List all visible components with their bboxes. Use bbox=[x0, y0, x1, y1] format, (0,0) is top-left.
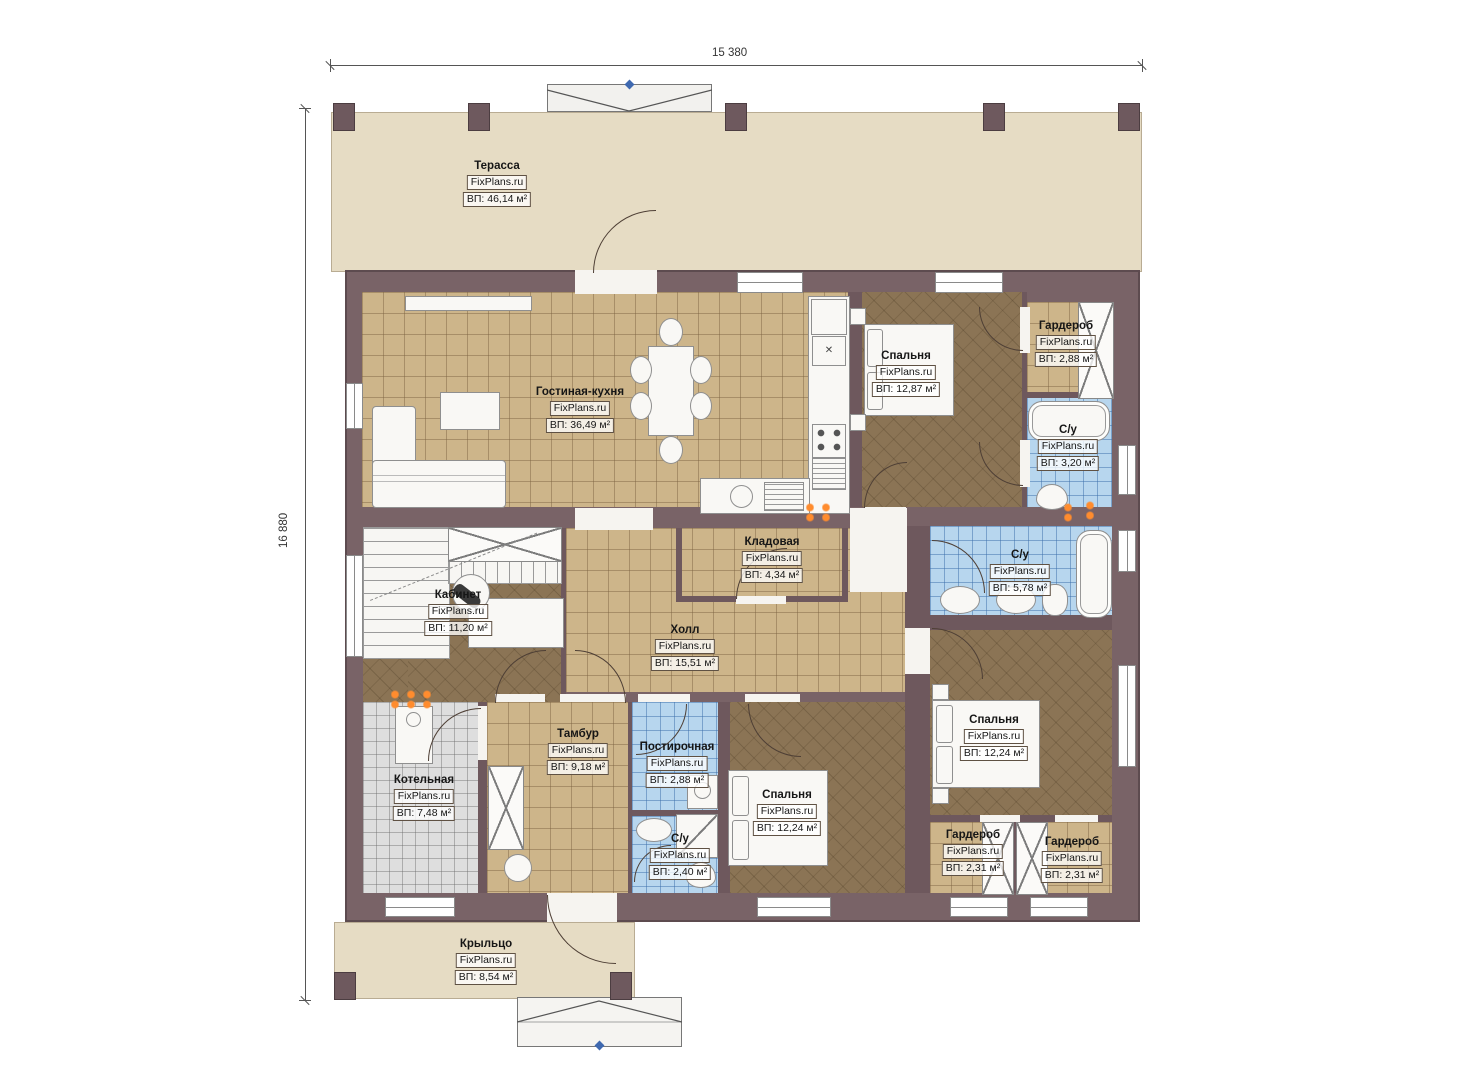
room-label-bathroom-bottom: С/у FixPlans.ru ВП: 2,40 м² bbox=[649, 833, 711, 880]
chair bbox=[690, 392, 712, 420]
room-label-wardrobe-top: Гардероб FixPlans.ru ВП: 2,88 м² bbox=[1035, 320, 1097, 367]
room-label-office: Кабинет FixPlans.ru ВП: 11,20 м² bbox=[424, 589, 492, 636]
nightstand bbox=[850, 414, 866, 431]
room-area: ВП: 36,49 м² bbox=[546, 418, 614, 433]
boiler-hatch bbox=[406, 712, 421, 727]
window bbox=[1118, 530, 1136, 572]
chair bbox=[630, 356, 652, 384]
outlet-icon bbox=[407, 690, 415, 709]
watermark: FixPlans.ru bbox=[655, 639, 716, 654]
chair bbox=[630, 392, 652, 420]
watermark: FixPlans.ru bbox=[757, 804, 818, 819]
watermark: FixPlans.ru bbox=[456, 953, 517, 968]
outlet-icon bbox=[1086, 501, 1094, 520]
watermark: FixPlans.ru bbox=[943, 844, 1004, 859]
room-area: ВП: 8,54 м² bbox=[455, 970, 517, 985]
door-opening bbox=[980, 815, 1020, 822]
chair bbox=[690, 356, 712, 384]
nightstand bbox=[932, 788, 949, 804]
room-area: ВП: 2,40 м² bbox=[649, 865, 711, 880]
outlet-icon bbox=[391, 690, 399, 709]
room-label-boiler-room: Котельная FixPlans.ru ВП: 7,48 м² bbox=[393, 774, 455, 821]
room-name: Кабинет bbox=[424, 589, 492, 602]
window bbox=[346, 555, 363, 657]
dishwasher bbox=[812, 458, 846, 490]
room-label-porch: Крыльцо FixPlans.ru ВП: 8,54 м² bbox=[455, 938, 517, 985]
chair bbox=[659, 436, 683, 464]
floor-plan-canvas: 15 380 16 880 bbox=[0, 0, 1474, 1080]
room-label-bathroom-mid: С/у FixPlans.ru ВП: 5,78 м² bbox=[989, 549, 1051, 596]
room-area: ВП: 5,78 м² bbox=[989, 581, 1051, 596]
wall bbox=[676, 528, 682, 602]
dimension-tick bbox=[299, 1000, 311, 1001]
room-area: ВП: 7,48 м² bbox=[393, 806, 455, 821]
room-area: ВП: 11,20 м² bbox=[424, 621, 492, 636]
door-opening bbox=[745, 694, 800, 702]
dimension-height-label: 16 880 bbox=[278, 513, 290, 548]
outlet-icon bbox=[806, 503, 814, 522]
room-area: ВП: 15,51 м² bbox=[651, 656, 719, 671]
outlet-icon bbox=[822, 503, 830, 522]
dimension-tick bbox=[1142, 59, 1143, 72]
door-opening bbox=[1055, 815, 1098, 822]
room-area: ВП: 9,18 м² bbox=[547, 760, 609, 775]
watermark: FixPlans.ru bbox=[548, 743, 609, 758]
room-label-bathroom-top: С/у FixPlans.ru ВП: 3,20 м² bbox=[1037, 424, 1099, 471]
dimension-tick bbox=[299, 108, 311, 109]
dimension-tick bbox=[330, 59, 331, 72]
window bbox=[950, 897, 1008, 917]
room-label-bedroom-top: Спальня FixPlans.ru ВП: 12,87 м² bbox=[872, 350, 940, 397]
room-area: ВП: 2,88 м² bbox=[646, 773, 708, 788]
terrace-pillar bbox=[333, 103, 355, 131]
outlet-icon bbox=[1064, 503, 1072, 522]
room-label-terrace: Терасса FixPlans.ru ВП: 46,14 м² bbox=[463, 160, 531, 207]
fridge bbox=[811, 299, 847, 335]
dish-rack bbox=[764, 482, 804, 511]
watermark: FixPlans.ru bbox=[467, 175, 528, 190]
nightstand bbox=[932, 684, 949, 700]
room-name: Кладовая bbox=[741, 536, 803, 549]
room-area: ВП: 2,31 м² bbox=[942, 861, 1004, 876]
nightstand bbox=[850, 308, 866, 325]
room-name: Спальня bbox=[960, 714, 1028, 727]
room-name: Холл bbox=[651, 624, 719, 637]
room-label-laundry: Постирочная FixPlans.ru ВП: 2,88 м² bbox=[640, 741, 715, 788]
room-label-living-kitchen: Гостиная-кухня FixPlans.ru ВП: 36,49 м² bbox=[536, 386, 624, 433]
watermark: FixPlans.ru bbox=[876, 365, 937, 380]
room-name: Котельная bbox=[393, 774, 455, 787]
wall bbox=[842, 528, 848, 602]
watermark: FixPlans.ru bbox=[394, 789, 455, 804]
window bbox=[385, 897, 455, 917]
watermark: FixPlans.ru bbox=[550, 401, 611, 416]
window bbox=[346, 383, 363, 429]
room-name: С/у bbox=[1037, 424, 1099, 437]
bathtub bbox=[1076, 530, 1112, 618]
room-name: С/у bbox=[989, 549, 1051, 562]
porch-pillar bbox=[610, 972, 632, 1000]
terrace-pillar bbox=[725, 103, 747, 131]
terrace-deck bbox=[331, 112, 1142, 272]
room-name: Крыльцо bbox=[455, 938, 517, 951]
dimension-line-top bbox=[330, 65, 1142, 66]
room-area: ВП: 4,34 м² bbox=[741, 568, 803, 583]
room-name: Гостиная-кухня bbox=[536, 386, 624, 399]
room-name: Терасса bbox=[463, 160, 531, 173]
watermark: FixPlans.ru bbox=[1042, 851, 1103, 866]
room-label-hall: Холл FixPlans.ru ВП: 15,51 м² bbox=[651, 624, 719, 671]
pillow bbox=[732, 776, 749, 816]
canopy-bottom bbox=[517, 997, 682, 1047]
room-name: Гардероб bbox=[942, 829, 1004, 842]
window bbox=[1030, 897, 1088, 917]
door-opening bbox=[575, 270, 657, 294]
room-name: Спальня bbox=[753, 789, 821, 802]
room-name: Тамбур bbox=[547, 728, 609, 741]
door-opening bbox=[905, 628, 930, 674]
stove bbox=[812, 424, 846, 458]
window bbox=[737, 272, 803, 293]
wall bbox=[905, 526, 930, 893]
office-floor bbox=[363, 655, 408, 702]
room-name: Гардероб bbox=[1035, 320, 1097, 333]
window bbox=[1118, 445, 1136, 495]
room-label-bedroom-mid: Спальня FixPlans.ru ВП: 12,24 м² bbox=[753, 789, 821, 836]
room-area: ВП: 2,31 м² bbox=[1041, 868, 1103, 883]
watermark: FixPlans.ru bbox=[990, 564, 1051, 579]
room-label-vestibule: Тамбур FixPlans.ru ВП: 9,18 м² bbox=[547, 728, 609, 775]
room-area: ВП: 12,24 м² bbox=[753, 821, 821, 836]
room-label-storage: Кладовая FixPlans.ru ВП: 4,34 м² bbox=[741, 536, 803, 583]
room-name: Гардероб bbox=[1041, 836, 1103, 849]
outlet-icon bbox=[423, 690, 431, 709]
room-label-wardrobe-br: Гардероб FixPlans.ru ВП: 2,31 м² bbox=[1041, 836, 1103, 883]
door-opening bbox=[638, 694, 690, 702]
room-area: ВП: 2,88 м² bbox=[1035, 352, 1097, 367]
watermark: FixPlans.ru bbox=[647, 756, 708, 771]
room-area: ВП: 12,87 м² bbox=[872, 382, 940, 397]
watermark: FixPlans.ru bbox=[650, 848, 711, 863]
pillow bbox=[936, 705, 953, 743]
watermark: FixPlans.ru bbox=[1036, 335, 1097, 350]
kitchen-sink-unit: ✕ bbox=[812, 336, 846, 366]
floor-drain bbox=[504, 854, 532, 882]
closet bbox=[488, 766, 524, 850]
chair bbox=[659, 318, 683, 346]
dimension-width-label: 15 380 bbox=[712, 47, 747, 59]
room-area: ВП: 3,20 м² bbox=[1037, 456, 1099, 471]
tv-cabinet bbox=[405, 296, 532, 311]
room-area: ВП: 12,24 м² bbox=[960, 746, 1028, 761]
coffee-table bbox=[440, 392, 500, 430]
watermark: FixPlans.ru bbox=[428, 604, 489, 619]
room-name: Постирочная bbox=[640, 741, 715, 754]
dimension-line-left bbox=[305, 108, 306, 1000]
window bbox=[935, 272, 1003, 293]
room-name: Спальня bbox=[872, 350, 940, 363]
room-label-bedroom-right: Спальня FixPlans.ru ВП: 12,24 м² bbox=[960, 714, 1028, 761]
door-opening bbox=[864, 507, 906, 528]
terrace-pillar bbox=[983, 103, 1005, 131]
window bbox=[757, 897, 831, 917]
wide-opening bbox=[575, 508, 653, 530]
terrace-pillar bbox=[1118, 103, 1140, 131]
wall bbox=[628, 702, 632, 893]
terrace-pillar bbox=[468, 103, 490, 131]
room-label-wardrobe-bl: Гардероб FixPlans.ru ВП: 2,31 м² bbox=[942, 829, 1004, 876]
room-area: ВП: 46,14 м² bbox=[463, 192, 531, 207]
watermark: FixPlans.ru bbox=[1038, 439, 1099, 454]
pillow bbox=[732, 820, 749, 860]
sink bbox=[730, 485, 753, 508]
window bbox=[1118, 665, 1136, 767]
porch-pillar bbox=[334, 972, 356, 1000]
pillow bbox=[936, 746, 953, 784]
room-name: С/у bbox=[649, 833, 711, 846]
watermark: FixPlans.ru bbox=[742, 551, 803, 566]
sofa bbox=[372, 460, 506, 508]
dining-table bbox=[648, 346, 694, 436]
watermark: FixPlans.ru bbox=[964, 729, 1025, 744]
